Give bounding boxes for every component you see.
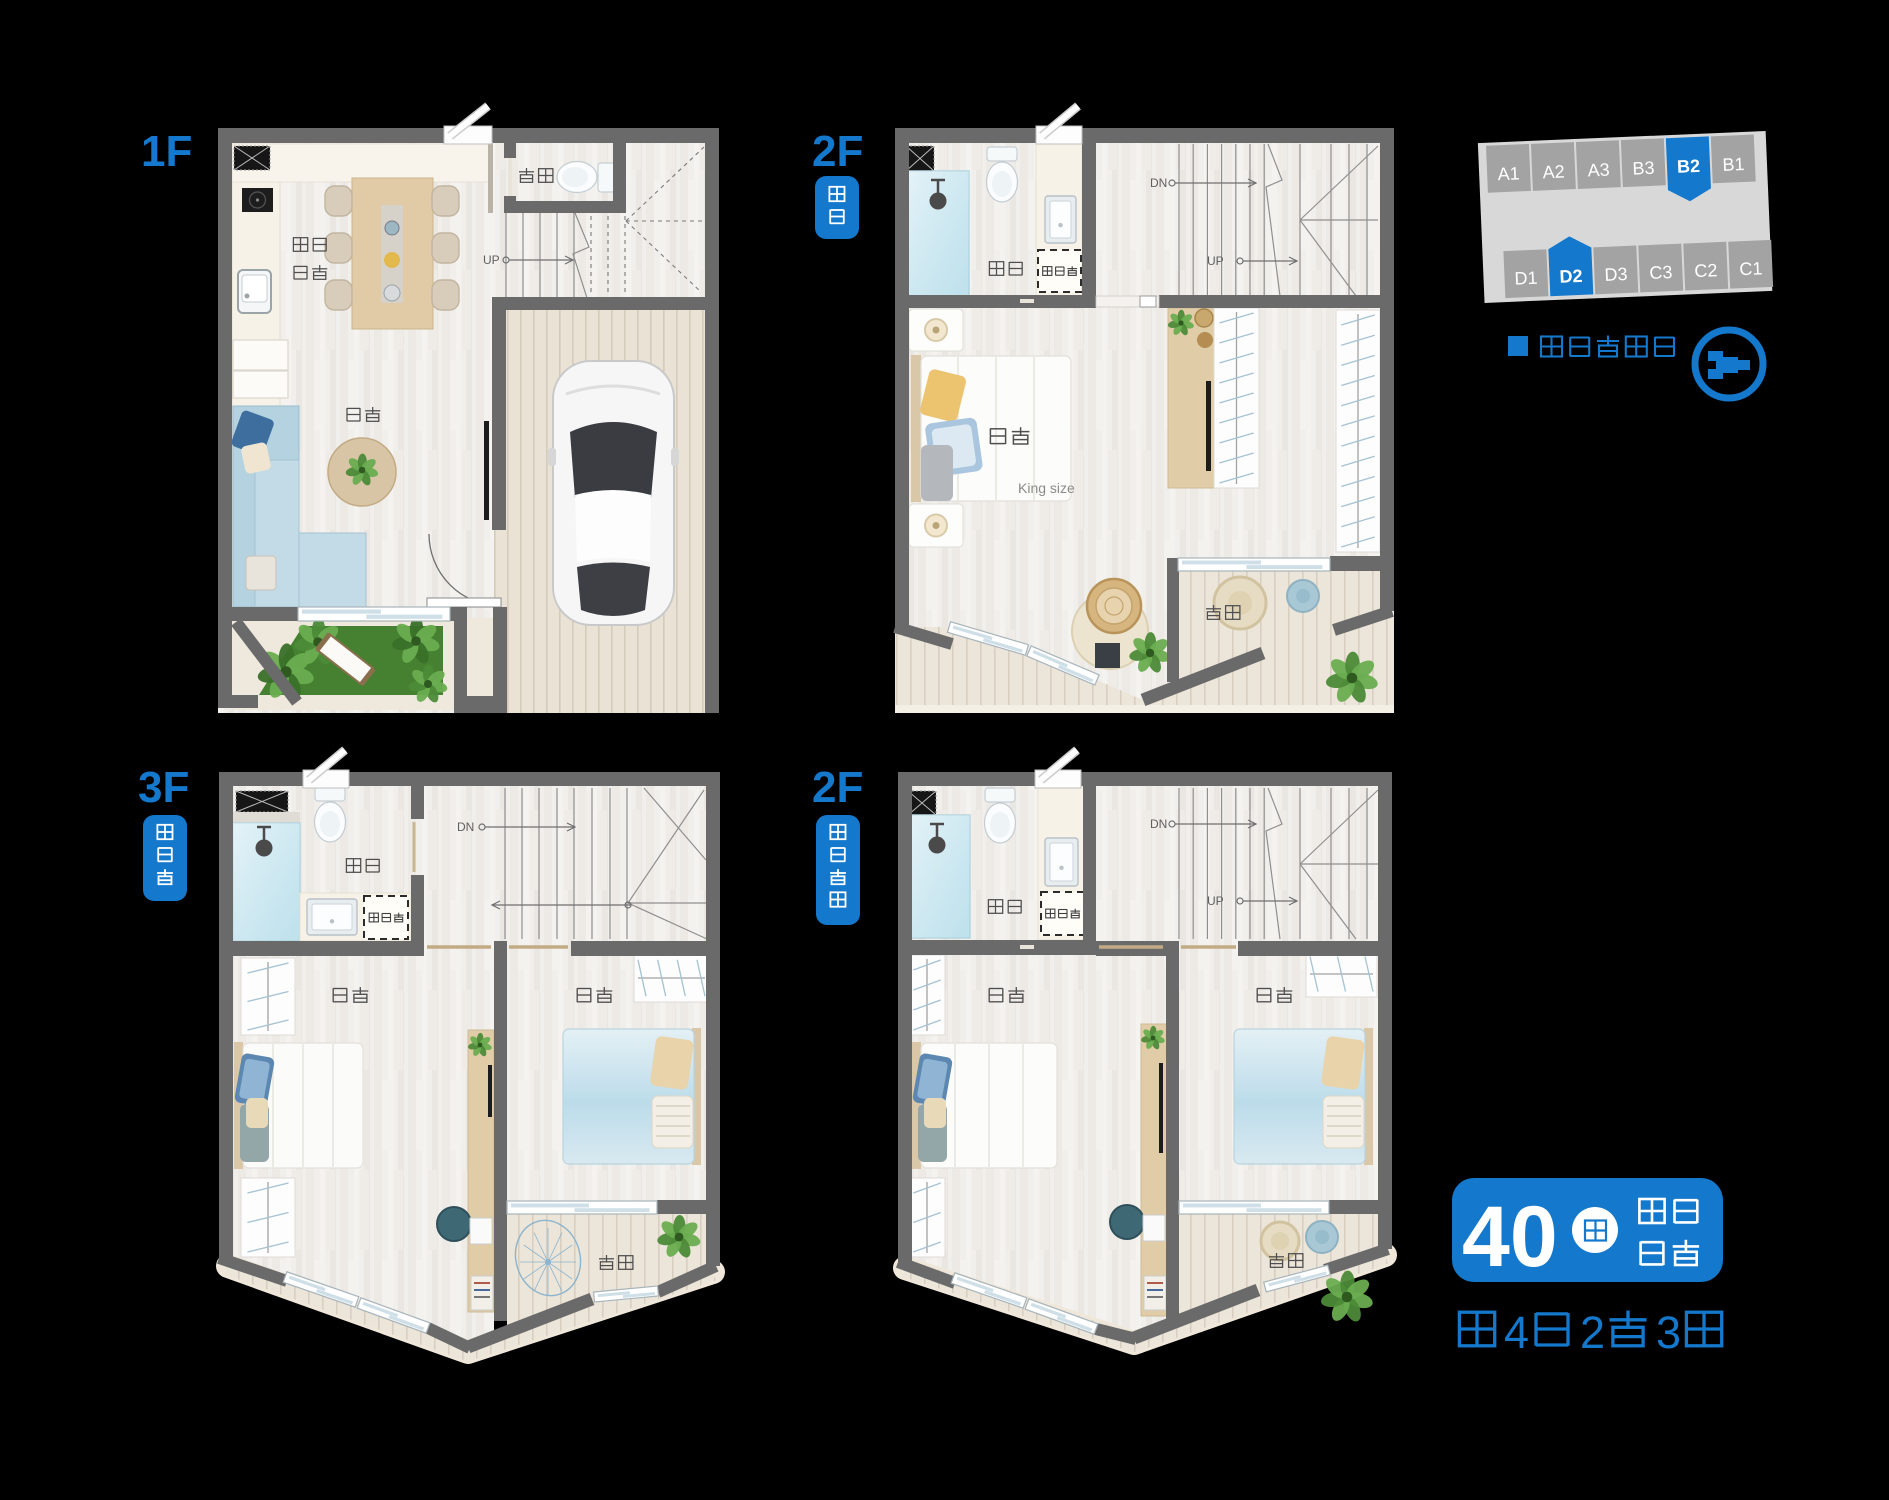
svg-text:3: 3 (1656, 1307, 1681, 1358)
svg-text:King size: King size (1018, 480, 1075, 496)
svg-text:2F: 2F (812, 763, 863, 812)
svg-text:4: 4 (1504, 1307, 1529, 1358)
svg-text:D1: D1 (1514, 268, 1538, 289)
svg-text:2F: 2F (812, 127, 863, 176)
svg-text:A1: A1 (1497, 163, 1520, 184)
svg-text:DN: DN (1150, 817, 1167, 831)
svg-text:DN: DN (1150, 176, 1167, 190)
svg-text:UP: UP (1207, 254, 1224, 268)
svg-text:D3: D3 (1604, 264, 1628, 285)
svg-text:B1: B1 (1722, 154, 1745, 175)
svg-text:C3: C3 (1649, 262, 1673, 283)
svg-text:UP: UP (1207, 894, 1224, 908)
svg-text:B3: B3 (1632, 158, 1655, 179)
svg-text:D2: D2 (1559, 266, 1583, 287)
svg-text:2: 2 (1580, 1307, 1605, 1358)
svg-text:A2: A2 (1542, 161, 1565, 182)
svg-text:3F: 3F (138, 763, 189, 812)
svg-text:UP: UP (483, 253, 500, 267)
svg-text:C1: C1 (1739, 258, 1763, 279)
svg-text:40: 40 (1462, 1189, 1558, 1285)
svg-text:1F: 1F (141, 127, 192, 176)
svg-text:DN: DN (457, 820, 474, 834)
svg-text:B2: B2 (1677, 156, 1701, 177)
svg-text:A3: A3 (1587, 160, 1610, 181)
svg-text:C2: C2 (1694, 260, 1718, 281)
